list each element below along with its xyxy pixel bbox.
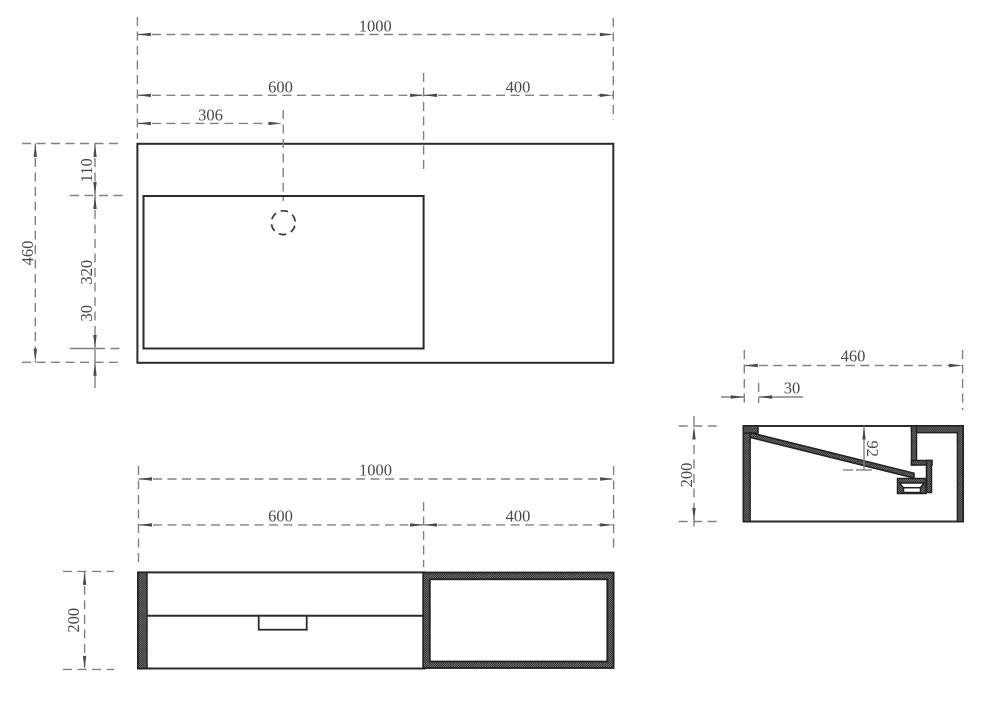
svg-text:400: 400 [506, 507, 531, 526]
svg-text:110: 110 [77, 158, 96, 182]
svg-text:320: 320 [77, 260, 96, 285]
svg-text:600: 600 [268, 507, 293, 526]
svg-text:460: 460 [841, 347, 866, 366]
svg-text:306: 306 [198, 105, 223, 124]
svg-text:92: 92 [863, 440, 882, 457]
svg-text:30: 30 [784, 378, 801, 397]
svg-text:600: 600 [268, 77, 293, 96]
svg-text:400: 400 [506, 77, 531, 96]
svg-text:1000: 1000 [359, 461, 392, 480]
svg-text:200: 200 [677, 463, 696, 488]
svg-text:30: 30 [77, 305, 96, 322]
svg-text:200: 200 [64, 608, 83, 633]
svg-text:1000: 1000 [359, 17, 392, 36]
svg-text:460: 460 [18, 241, 37, 266]
